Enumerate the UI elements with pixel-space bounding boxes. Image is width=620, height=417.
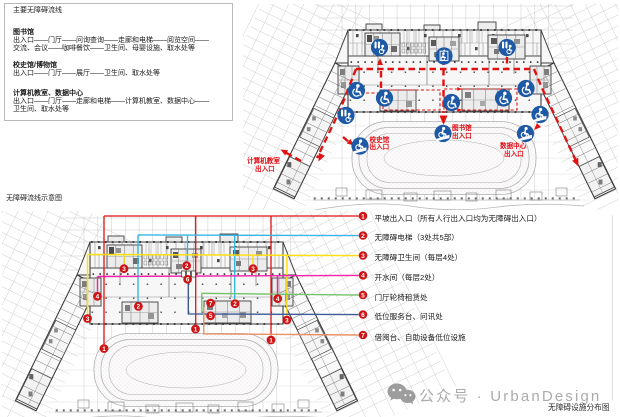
svg-text:2: 2: [137, 304, 141, 311]
svg-text:7: 7: [209, 300, 213, 307]
svg-text:7: 7: [361, 332, 365, 339]
svg-text:1: 1: [194, 326, 198, 333]
svg-text:1: 1: [269, 337, 273, 344]
svg-text:3: 3: [285, 317, 289, 324]
svg-text:2: 2: [233, 301, 237, 308]
svg-text:3: 3: [361, 253, 365, 260]
svg-text:3: 3: [251, 266, 255, 273]
svg-text:6: 6: [186, 277, 190, 284]
svg-text:3: 3: [86, 316, 90, 323]
svg-text:6: 6: [361, 312, 365, 319]
svg-text:4: 4: [361, 273, 365, 280]
svg-text:4: 4: [96, 294, 100, 301]
svg-text:3: 3: [122, 266, 126, 273]
svg-text:1: 1: [102, 346, 106, 353]
svg-text:4: 4: [276, 296, 280, 303]
svg-text:2: 2: [361, 233, 365, 240]
svg-text:5: 5: [209, 313, 213, 320]
svg-text:2: 2: [185, 263, 189, 270]
svg-text:5: 5: [361, 292, 365, 299]
svg-text:1: 1: [361, 213, 365, 220]
